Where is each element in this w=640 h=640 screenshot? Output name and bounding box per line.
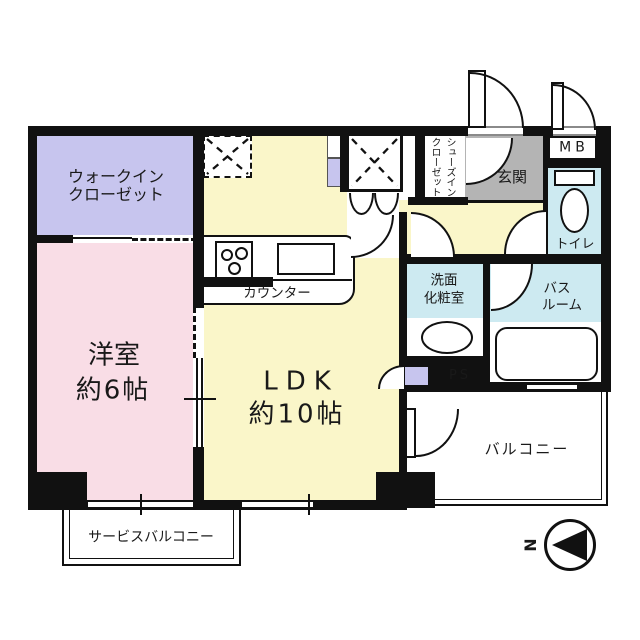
entrance-door-swing (470, 72, 524, 128)
shoes-closet-label: シューズイン クローゼット (427, 137, 457, 199)
entrance-step-line (466, 200, 543, 203)
window-tick (308, 494, 310, 515)
bedroom-floor (37, 243, 193, 502)
bathroom-label: バス (544, 282, 571, 297)
x-cross-icon (205, 137, 250, 176)
wic-doorway-line (72, 237, 132, 239)
compass-north-label: N (522, 538, 540, 551)
compass-needle-icon (552, 529, 587, 561)
bathroom-window (527, 383, 577, 391)
x-cross-icon (349, 136, 400, 189)
stove-burner-icon (235, 247, 248, 260)
bedroom-size: 約6帖 (76, 377, 151, 406)
entrance-label: 玄関 (497, 169, 527, 186)
outer-wall-top-left (28, 126, 468, 136)
stove (215, 241, 253, 279)
meter-box-door-swing (553, 84, 596, 130)
pipe-space-label: PS (449, 369, 471, 383)
wall-tick (184, 398, 216, 400)
walk-in-closet-label: クローゼット (68, 186, 164, 204)
refrigerator-space-symbol (203, 135, 252, 178)
toilet-tank (554, 170, 595, 186)
washroom-floor (406, 260, 483, 318)
pillar-bottom-left (28, 472, 87, 505)
laundry-space-symbol (346, 133, 403, 192)
washroom-label: 化粧室 (424, 292, 465, 307)
balcony-top-wall (407, 382, 607, 392)
bedroom-ldk-wall-lower (193, 447, 204, 502)
kitchen-column-wall (340, 133, 348, 192)
bathtub (495, 327, 598, 381)
bedroom-ldk-wall-upper (193, 243, 204, 308)
shoes-closet-left-wall (415, 133, 425, 205)
washbasin (421, 321, 473, 354)
bedroom-sliding-door (196, 358, 198, 448)
wic-doorway-dashed (132, 238, 197, 241)
wic-bottom-wall (37, 235, 73, 243)
kitchen-side-shelf (327, 135, 341, 158)
floor-plan: ウォークイン クローゼット 洋室 約6帖 LDK 約10帖 カウンター 玄関 M… (0, 0, 640, 640)
stove-burner-icon (228, 262, 241, 275)
outer-wall-left (28, 126, 37, 510)
kitchen-sink (277, 243, 335, 275)
meter-box-label: MB (559, 140, 589, 155)
ldk-storage-door (404, 366, 429, 386)
service-balcony-label: サービスバルコニー (88, 530, 214, 545)
wic-right-wall (193, 133, 204, 243)
toilet-bowl (560, 188, 589, 233)
ldk-size: 約10帖 (248, 401, 345, 430)
bedroom-opening-dashed (193, 307, 196, 358)
washroom-label: 洗面 (431, 274, 458, 289)
balcony-label: バルコニー (485, 441, 570, 458)
ldk-right-wall-upper (399, 212, 407, 364)
kitchen-side-storage (327, 158, 341, 187)
toilet-label: トイレ (555, 238, 594, 252)
bedroom-name: 洋室 (88, 342, 140, 371)
bedroom-sliding-door (201, 358, 203, 448)
kitchen-counter-edge (273, 279, 352, 281)
outer-wall-top-mid (523, 126, 553, 136)
counter-label: カウンター (243, 287, 311, 302)
ldk-name: LDK (263, 368, 339, 397)
stove-burner-icon (221, 249, 233, 261)
bathroom-label: ルーム (542, 299, 582, 314)
ldk-window (242, 500, 313, 509)
walk-in-closet-label: ウォークイン (68, 168, 164, 186)
